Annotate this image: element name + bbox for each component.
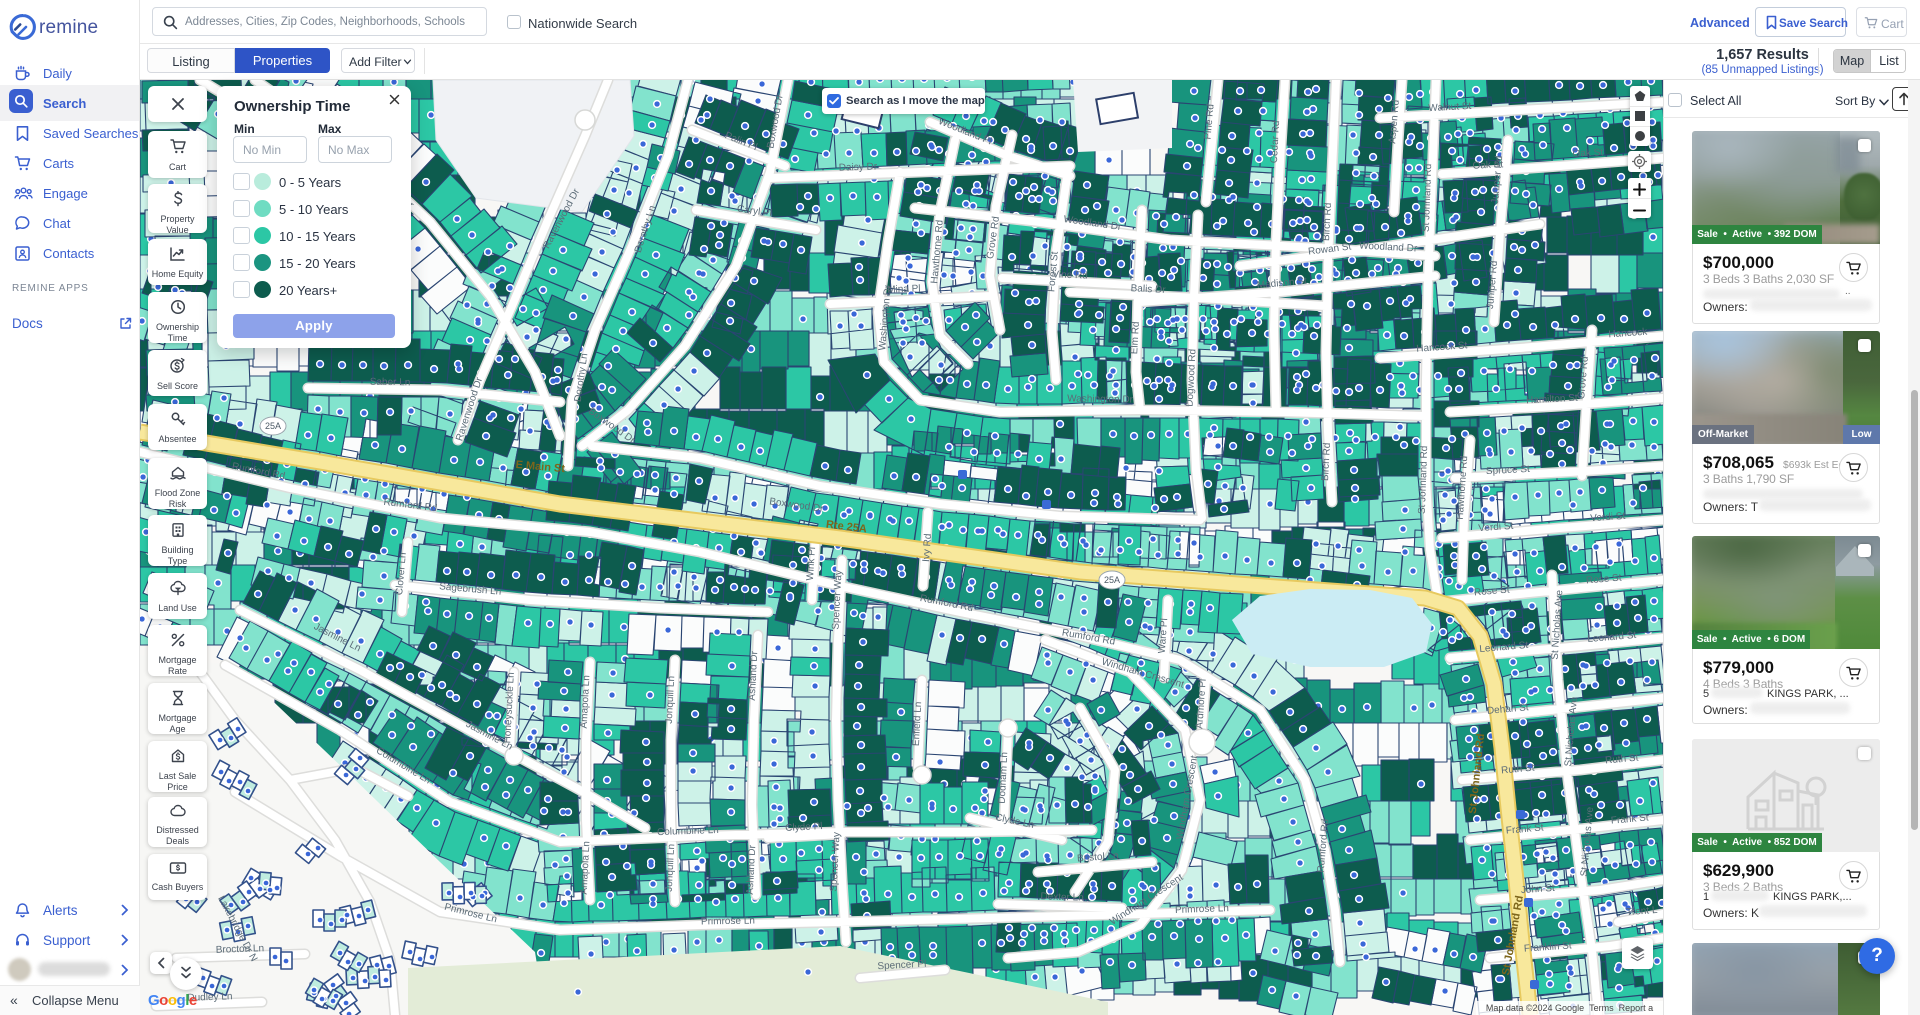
svg-text:Birch Rd: Birch Rd (1320, 442, 1333, 481)
svg-text:Spruce St: Spruce St (1486, 464, 1531, 477)
svg-text:Primrose Ln: Primrose Ln (701, 916, 755, 928)
svg-text:Saber Ln: Saber Ln (370, 377, 411, 389)
svg-text:Oak St: Oak St (1572, 147, 1603, 160)
svg-text:Ivy Rd: Ivy Rd (921, 533, 934, 562)
svg-text:Clyde Pl: Clyde Pl (785, 821, 823, 834)
svg-text:Balis Dr: Balis Dr (1130, 283, 1166, 296)
svg-text:Washington Dr: Washington Dr (1067, 393, 1134, 405)
svg-text:25A: 25A (265, 421, 281, 431)
svg-text:Enfield Ln: Enfield Ln (911, 701, 924, 746)
svg-text:Birch Rd: Birch Rd (1321, 202, 1334, 241)
svg-text:Walnut St: Walnut St (1428, 101, 1472, 114)
svg-text:Elm Rd: Elm Rd (1129, 321, 1142, 354)
svg-text:Trent L: Trent L (1626, 905, 1658, 918)
svg-text:Primrose Ln: Primrose Ln (1175, 903, 1229, 916)
svg-text:25A: 25A (1104, 575, 1120, 585)
svg-text:Columbine Ln: Columbine Ln (657, 825, 719, 838)
svg-text:Cedar Rd: Cedar Rd (1269, 120, 1282, 163)
svg-text:Daisy Dr: Daisy Dr (839, 161, 878, 173)
svg-text:Dexter Ln: Dexter Ln (1040, 891, 1084, 904)
